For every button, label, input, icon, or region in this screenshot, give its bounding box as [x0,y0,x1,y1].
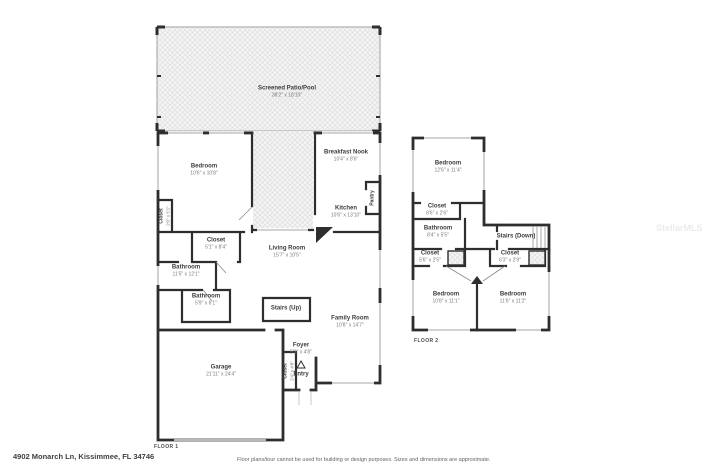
room-name: Family Room [331,316,369,323]
room-dims: 10'6" x 10'8" [190,171,217,177]
room-dims: 5'3" x 4'8" [290,350,312,356]
room-name: Pantry [370,190,377,206]
room-label-hall-closet: Closet 2'0" x 5'1" [159,206,172,226]
room-dims: 8'6" x 2'6" [426,211,448,217]
room-dims: 2'0" x 5'1" [166,206,172,226]
closet-left-hatch [448,251,464,265]
room-label-bedroom-f1: Bedroom 10'6" x 10'8" [190,164,217,177]
room-dims: 10'6" x 13'10" [331,213,361,219]
room-label-main-closet: Closet 5'1" x 8'4" [205,238,227,251]
room-label-family-room: Family Room 10'8" x 14'7" [331,316,369,329]
room-dims: 11'6" x 11'2" [500,299,527,305]
room-label-stairs-down: Stairs (Down) [497,234,536,241]
room-dims: 10'8" x 11'1" [432,299,459,305]
room-name: Closet [283,361,290,381]
watermark: StellarMLS [656,223,703,233]
hall-wall-point [471,276,483,284]
room-label-pantry: Pantry [370,190,377,206]
floor1-caption: FLOOR 1 [154,444,178,450]
room-name: Living Room [269,246,305,253]
room-label-stairs-up: Stairs (Up) [271,306,301,313]
room-label-bedroom-right: Bedroom 11'6" x 11'2" [500,292,527,305]
room-name: Stairs (Down) [497,234,536,241]
room-label-living-room: Living Room 15'7" x 10'5" [269,246,305,259]
room-dims: 8'4" x 5'5" [424,233,452,239]
room-name: Closet [205,238,227,245]
room-name: Bathroom [172,265,200,272]
entry-door-icon [297,361,305,368]
room-label-closet-top: Closet 8'6" x 2'6" [426,204,448,217]
entry-walkway [299,392,311,405]
floorplan-graphics [0,0,705,469]
room-name: Entry [293,372,308,379]
closet-right-hatch [529,251,545,265]
room-dims: 5'6" x 2'5" [419,258,441,264]
room-label-bedroom-left: Bedroom 10'8" x 11'1" [432,292,459,305]
room-label-garage: Garage 21'11" x 24'4" [206,365,236,378]
floor-plan-page: Screened Patio/Pool 38'2" x 18'10" Bedro… [0,0,705,469]
room-dims: 2'4" x 4'8" [290,361,296,381]
room-label-half-bathroom: Bathroom 5'9" x 6'1" [192,294,220,307]
patio-area [157,27,380,231]
room-name: Closet [499,251,521,258]
room-name: Bathroom [424,226,452,233]
room-label-kitchen: Kitchen 10'6" x 13'10" [331,206,361,219]
room-name: Closet [426,204,448,211]
room-name: Kitchen [331,206,361,213]
room-name: Closet [159,206,166,226]
room-name: Closet [419,251,441,258]
room-name: Stairs (Up) [271,306,301,313]
room-dims: 6'3" x 2'9" [499,258,521,264]
room-dims: 5'1" x 8'4" [205,245,227,251]
room-label-closet-right: Closet 6'3" x 2'9" [499,251,521,264]
room-label-main-bathroom: Bathroom 11'5" x 12'1" [172,265,200,278]
room-label-foyer: Foyer 5'3" x 4'8" [290,343,312,356]
address-text: 4902 Monarch Ln, Kissimmee, FL 34746 [13,452,154,461]
floor2-caption: FLOOR 2 [414,338,438,344]
room-dims: 10'4" x 8'6" [324,157,368,163]
room-dims: 15'7" x 10'5" [269,253,305,259]
room-name: Screened Patio/Pool [258,86,316,93]
room-dims: 38'2" x 18'10" [258,93,316,99]
room-name: Bedroom [432,292,459,299]
room-dims: 21'11" x 24'4" [206,372,236,378]
room-label-bathroom-f2: Bathroom 8'4" x 5'5" [424,226,452,239]
room-name: Bedroom [190,164,217,171]
room-name: Bedroom [434,161,461,168]
room-dims: 11'5" x 12'1" [172,272,200,278]
room-label-bedroom-primary: Bedroom 12'6" x 11'4" [434,161,461,174]
disclaimer-text: Floor plans/tour cannot be used for buil… [237,457,490,463]
room-dims: 5'9" x 6'1" [192,301,220,307]
room-label-entry: Entry [293,372,308,379]
room-name: Bathroom [192,294,220,301]
room-name: Breakfast Nook [324,150,368,157]
room-label-closet-left: Closet 5'6" x 2'5" [419,251,441,264]
room-name: Bedroom [500,292,527,299]
room-label-screened-patio: Screened Patio/Pool 38'2" x 18'10" [258,86,316,99]
room-dims: 10'8" x 14'7" [331,323,369,329]
room-name: Foyer [290,343,312,350]
room-label-breakfast-nook: Breakfast Nook 10'4" x 8'6" [324,150,368,163]
room-dims: 12'6" x 11'4" [434,168,461,174]
room-label-entry-closet: Closet 2'4" x 4'8" [283,361,296,381]
kitchen-counter-corner [316,227,333,243]
room-name: Garage [206,365,236,372]
